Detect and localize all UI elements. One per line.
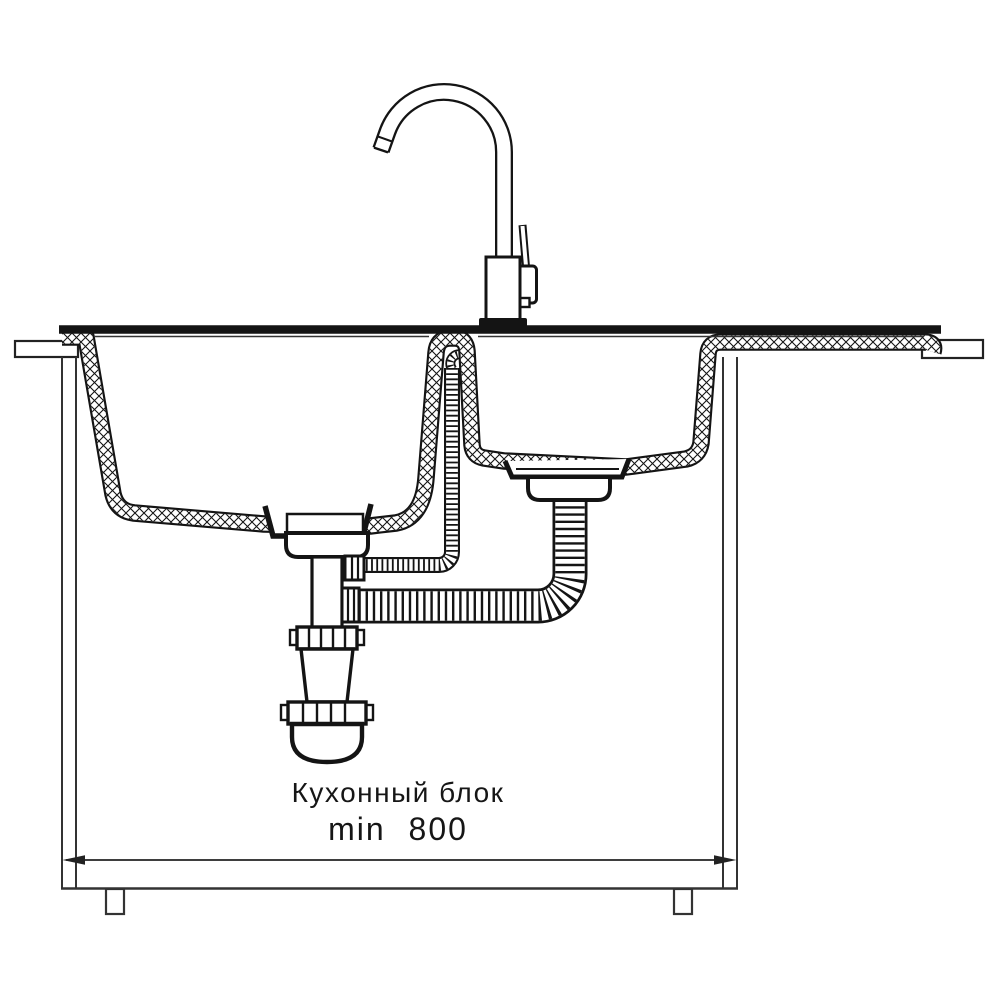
- sink-installation-diagram: min 800 Кухонный блок: [0, 0, 1000, 1000]
- right-drain-cup: [528, 477, 610, 500]
- overflow-inlet-nut: [345, 556, 364, 580]
- caption-label: Кухонный блок: [292, 777, 505, 808]
- siphon-union-nut-bottom: [281, 702, 373, 724]
- drain-tailpipe: [312, 557, 342, 629]
- cabinet-foot-right: [674, 889, 692, 914]
- cabinet-foot-left: [106, 889, 124, 914]
- faucet-body: [486, 257, 520, 322]
- faucet-base-flange: [479, 318, 527, 327]
- drain-pipe-inlet-nut: [342, 588, 359, 622]
- diagram-canvas: min 800 Кухонный блок: [0, 0, 1000, 1000]
- dimension-label: min 800: [328, 811, 468, 847]
- siphon-union-nut-top: [290, 627, 364, 649]
- siphon-bottle: [301, 649, 353, 702]
- left-drain-cup: [286, 533, 368, 557]
- siphon-bottom-cup: [292, 724, 362, 762]
